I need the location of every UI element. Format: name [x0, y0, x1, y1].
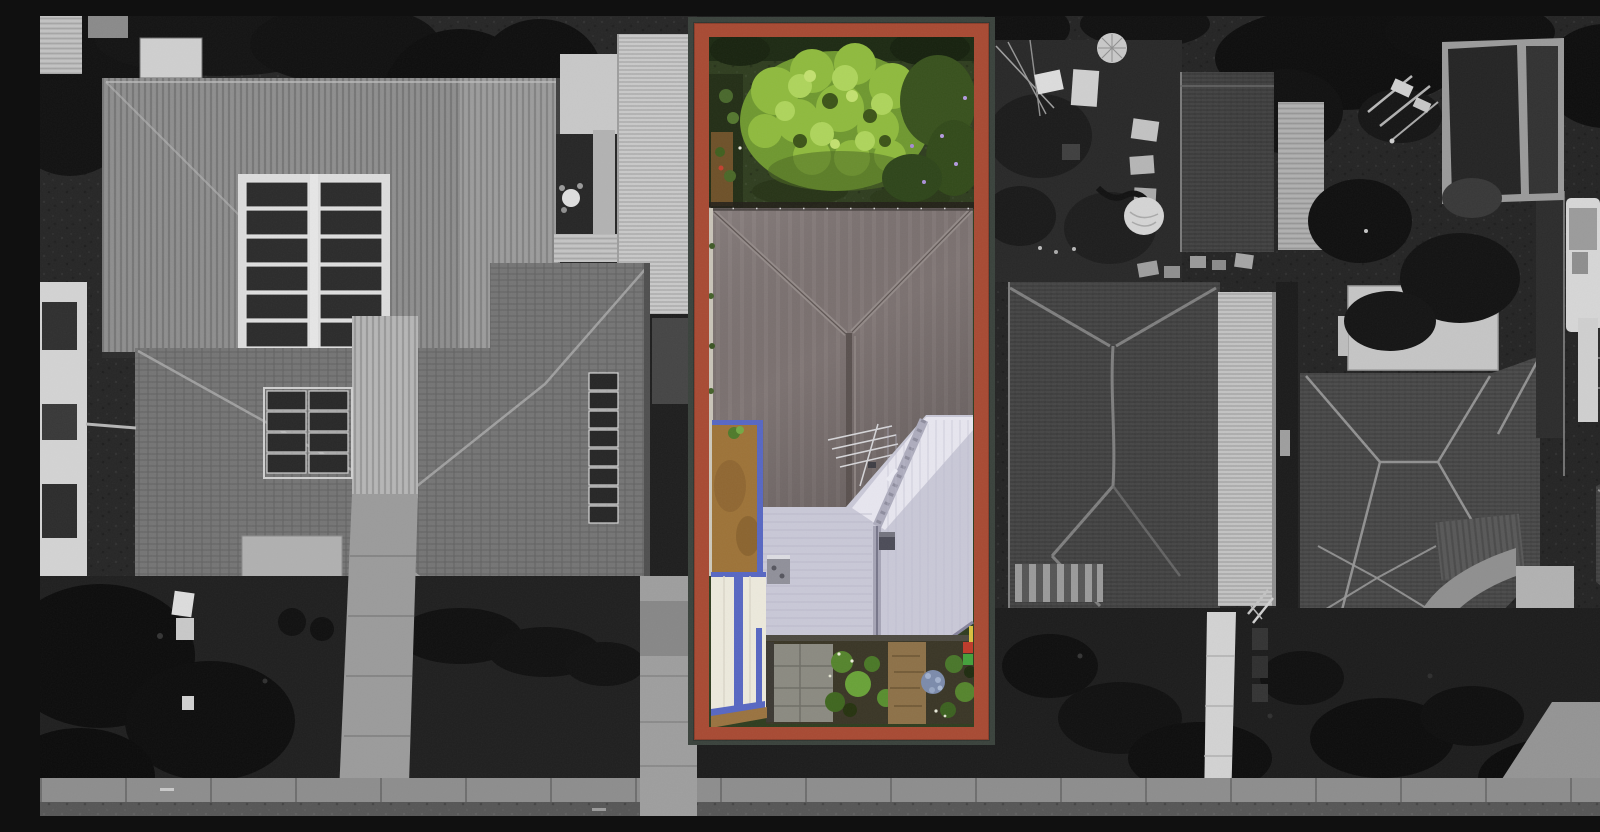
aerial-photo-canvas	[40, 16, 1600, 816]
aerial-photo	[40, 16, 1600, 816]
film-grain	[40, 16, 1600, 816]
